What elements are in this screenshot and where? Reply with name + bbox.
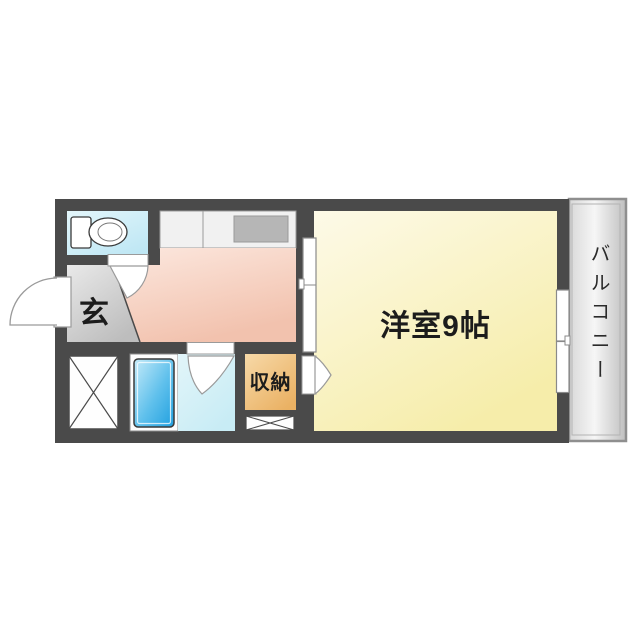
balcony-window-latch bbox=[565, 336, 570, 345]
front-door-swing-arc bbox=[10, 278, 57, 325]
closet-x-large bbox=[69, 356, 118, 429]
balcony-window-lower-panel bbox=[557, 342, 570, 393]
toilet-door-opening bbox=[108, 255, 148, 267]
floor-plan: 玄 洋室9帖 収納 バルコニー bbox=[0, 0, 640, 640]
balcony-window-upper-panel bbox=[557, 290, 570, 341]
western-room-label: 洋室9帖 bbox=[314, 301, 557, 345]
bathtub-icon bbox=[134, 359, 174, 427]
closet-x-small bbox=[246, 416, 294, 430]
entrance-label: 玄 bbox=[79, 288, 109, 332]
toilet-tank bbox=[71, 217, 91, 248]
sliding-door-handle bbox=[299, 279, 304, 289]
toilet-bowl bbox=[89, 218, 127, 246]
washroom-door-opening bbox=[187, 343, 234, 355]
storage-door-opening bbox=[302, 356, 316, 394]
storage-label: 収納 bbox=[245, 366, 296, 395]
balcony-window bbox=[557, 290, 571, 393]
balcony-label: バルコニー bbox=[584, 243, 613, 413]
toilet-icon bbox=[71, 217, 127, 248]
bathtub-outline bbox=[134, 359, 174, 427]
stove-top bbox=[234, 216, 288, 242]
front-door bbox=[10, 277, 71, 327]
